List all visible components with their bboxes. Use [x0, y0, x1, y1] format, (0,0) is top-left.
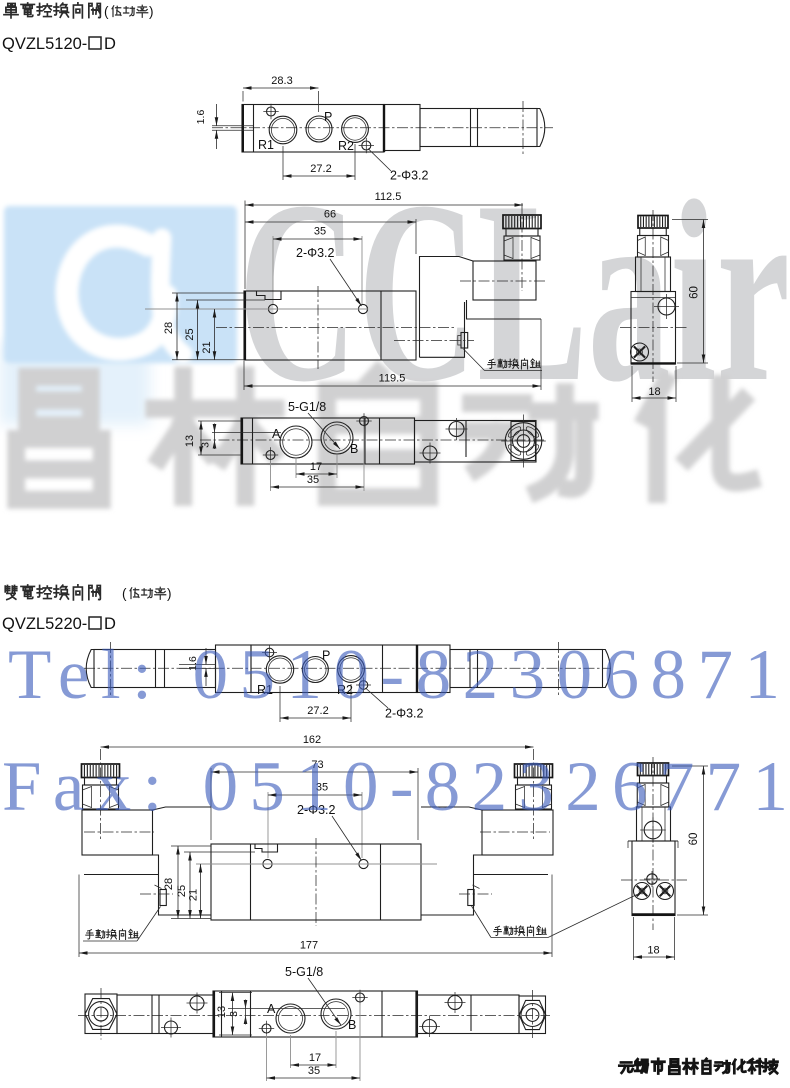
svg-text:2-Φ3.2: 2-Φ3.2	[296, 246, 335, 260]
svg-text:18: 18	[647, 945, 659, 957]
svg-text:28.3: 28.3	[271, 75, 292, 87]
svg-text:3: 3	[200, 442, 212, 448]
svg-text:): )	[149, 4, 154, 19]
svg-text:28: 28	[163, 322, 175, 334]
svg-text:P: P	[324, 110, 332, 124]
svg-text:Fax: 0510-82326771: Fax: 0510-82326771	[2, 748, 788, 826]
svg-text:28: 28	[163, 878, 175, 890]
svg-text:60: 60	[689, 286, 701, 299]
svg-text:A: A	[272, 427, 281, 441]
svg-text:27.2: 27.2	[310, 163, 331, 175]
svg-text:Tel: 0510-82306871: Tel: 0510-82306871	[8, 636, 780, 714]
svg-text:60: 60	[688, 833, 700, 846]
svg-text:3: 3	[228, 1011, 240, 1017]
svg-text:P: P	[322, 649, 330, 663]
svg-text:D: D	[104, 615, 116, 633]
svg-text:35: 35	[308, 1065, 320, 1077]
svg-text:21: 21	[201, 341, 213, 353]
svg-text:17: 17	[310, 461, 322, 473]
svg-text:QVZL5120-: QVZL5120-	[2, 35, 87, 53]
svg-text:25: 25	[184, 328, 196, 340]
svg-text:A: A	[267, 1002, 276, 1016]
svg-text:18: 18	[648, 386, 660, 398]
svg-text:(: (	[122, 586, 127, 601]
svg-text:162: 162	[303, 734, 321, 746]
svg-text:13: 13	[216, 1006, 228, 1018]
svg-text:5-G1/8: 5-G1/8	[285, 965, 323, 979]
svg-text:25: 25	[176, 885, 188, 897]
svg-text:1.6: 1.6	[195, 110, 207, 125]
svg-text:R1: R1	[258, 138, 274, 152]
svg-text:B: B	[348, 1018, 356, 1032]
svg-text:R2: R2	[338, 139, 354, 153]
svg-text:): )	[167, 586, 172, 601]
svg-text:B: B	[350, 442, 358, 456]
svg-text:QVZL5220-: QVZL5220-	[2, 615, 87, 633]
svg-text:2-Φ3.2: 2-Φ3.2	[390, 169, 429, 183]
svg-text:35: 35	[307, 474, 319, 486]
svg-text:(: (	[104, 4, 109, 19]
svg-text:17: 17	[309, 1052, 321, 1064]
svg-text:112.5: 112.5	[375, 191, 402, 203]
svg-text:119.5: 119.5	[379, 373, 406, 385]
svg-text:66: 66	[324, 209, 336, 221]
svg-text:177: 177	[300, 940, 318, 952]
svg-text:21: 21	[188, 889, 200, 901]
svg-text:5-G1/8: 5-G1/8	[288, 400, 326, 414]
svg-text:D: D	[104, 35, 116, 53]
svg-text:13: 13	[184, 435, 196, 447]
svg-text:35: 35	[314, 226, 326, 238]
